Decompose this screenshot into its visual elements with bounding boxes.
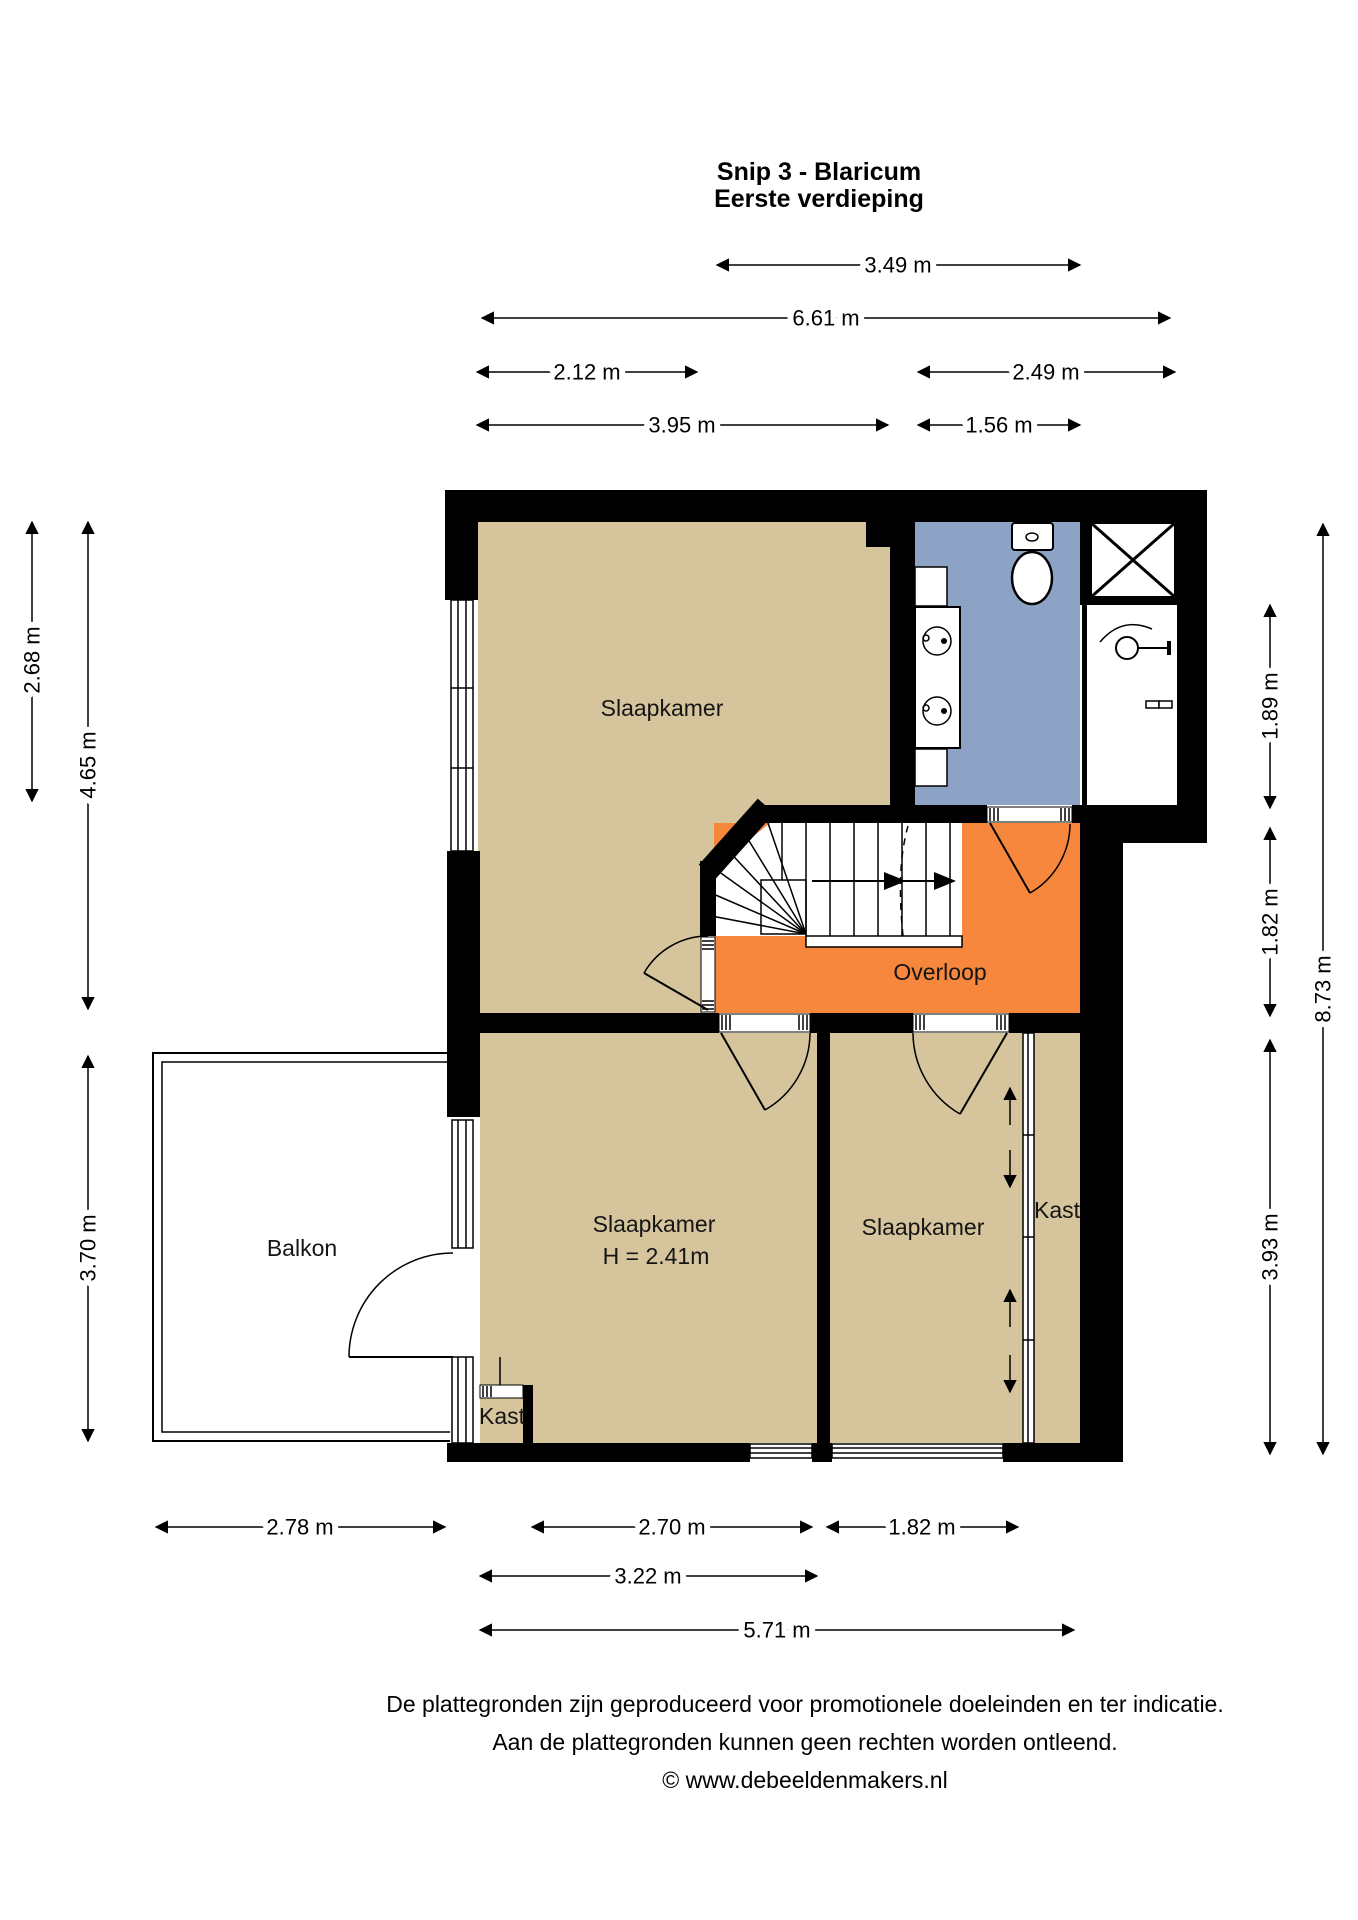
room-bedroom-mid-floor xyxy=(480,1033,817,1443)
dim-label: 2.12 m xyxy=(553,360,620,385)
dim-label: 3.95 m xyxy=(648,413,715,438)
dim-label: 3.49 m xyxy=(864,253,931,278)
dim-label: 1.89 m xyxy=(1258,672,1283,739)
toilet-icon xyxy=(1012,523,1053,604)
window-balcony-lower xyxy=(452,1357,473,1443)
room-label-closet-right: Kast xyxy=(1034,1197,1081,1223)
footer-line2: Aan de plattegronden kunnen geen rechten… xyxy=(492,1729,1117,1755)
dim-label: 2.70 m xyxy=(638,1515,705,1540)
room-label-bedroom-mid: Slaapkamer xyxy=(593,1211,716,1237)
room-label-bedroom-top: Slaapkamer xyxy=(601,695,724,721)
dim-label: 3.70 m xyxy=(76,1214,101,1281)
footer-line1: De plattegronden zijn geproduceerd voor … xyxy=(386,1691,1224,1717)
plan-title: Snip 3 - Blaricum Eerste verdieping xyxy=(714,158,924,213)
dim-label: 1.56 m xyxy=(965,413,1032,438)
title-line2: Eerste verdieping xyxy=(714,185,924,213)
window-bedroom-mid-bottom xyxy=(750,1444,812,1458)
door-balcony xyxy=(349,1253,453,1357)
dim-label: 2.49 m xyxy=(1012,360,1079,385)
dim-label: 5.71 m xyxy=(743,1618,810,1643)
window-bedroom-top-left xyxy=(451,600,473,851)
dim-label: 2.68 m xyxy=(20,626,45,693)
room-label-closet-left: Kast xyxy=(479,1403,526,1429)
room-label-bedroom-mid-height: H = 2.41m xyxy=(603,1243,710,1269)
shaft xyxy=(1090,522,1176,598)
floorplan-drawing: Snip 3 - Blaricum Eerste verdieping xyxy=(0,0,1358,1920)
floorplan-page: Snip 3 - Blaricum Eerste verdieping xyxy=(0,0,1358,1920)
footer-disclaimer: De plattegronden zijn geproduceerd voor … xyxy=(386,1691,1224,1793)
room-label-balcony: Balkon xyxy=(267,1235,337,1261)
dim-label: 1.82 m xyxy=(1258,888,1283,955)
dim-label: 2.78 m xyxy=(266,1515,333,1540)
room-label-bedroom-right: Slaapkamer xyxy=(862,1214,985,1240)
window-balcony-upper xyxy=(452,1120,473,1248)
dim-label: 3.93 m xyxy=(1258,1213,1283,1280)
room-label-hall: Overloop xyxy=(893,959,986,985)
room-fills xyxy=(478,522,1080,1443)
dim-label: 8.73 m xyxy=(1311,955,1336,1022)
footer-line3: © www.debeeldenmakers.nl xyxy=(662,1767,947,1793)
window-bedroom-right-bottom xyxy=(832,1444,1003,1458)
dim-label: 4.65 m xyxy=(76,731,101,798)
dim-label: 6.61 m xyxy=(792,306,859,331)
dim-label: 3.22 m xyxy=(614,1564,681,1589)
shower-icon xyxy=(1100,625,1172,708)
title-line1: Snip 3 - Blaricum xyxy=(717,158,921,186)
dim-label: 1.82 m xyxy=(888,1515,955,1540)
